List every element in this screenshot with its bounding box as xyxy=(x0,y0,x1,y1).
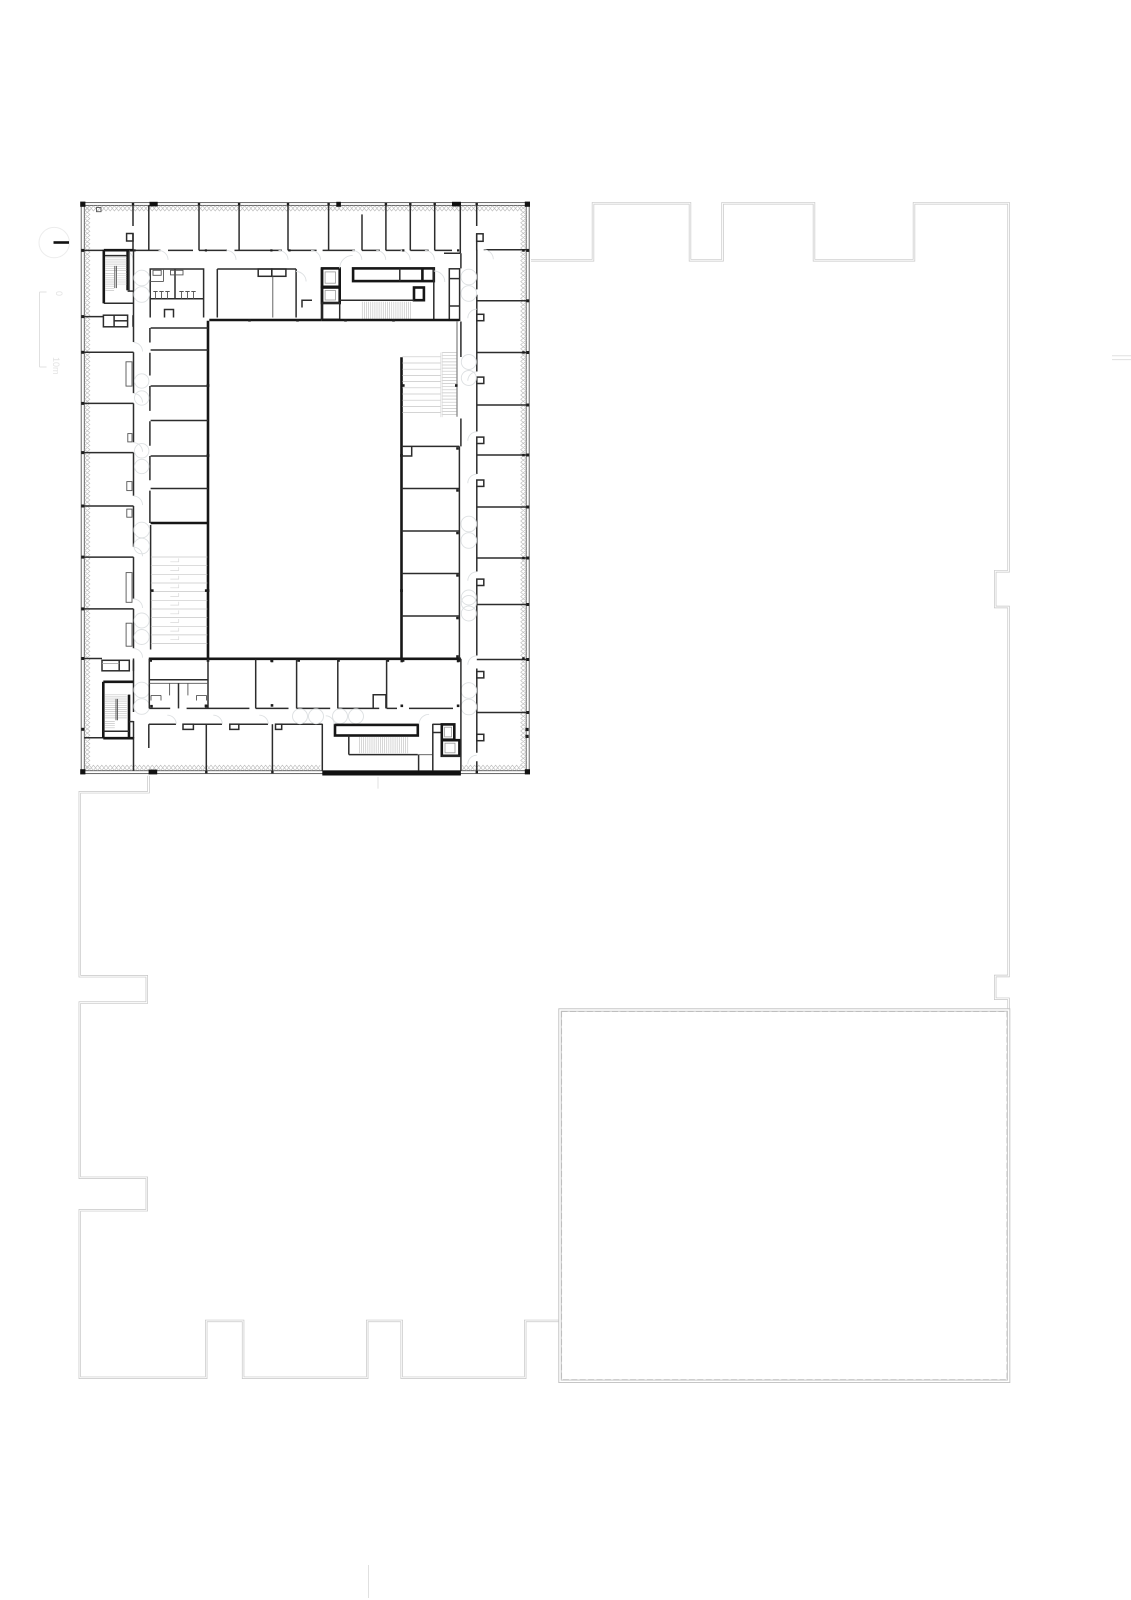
svg-text:0: 0 xyxy=(54,291,64,296)
svg-text:10m: 10m xyxy=(51,357,61,375)
